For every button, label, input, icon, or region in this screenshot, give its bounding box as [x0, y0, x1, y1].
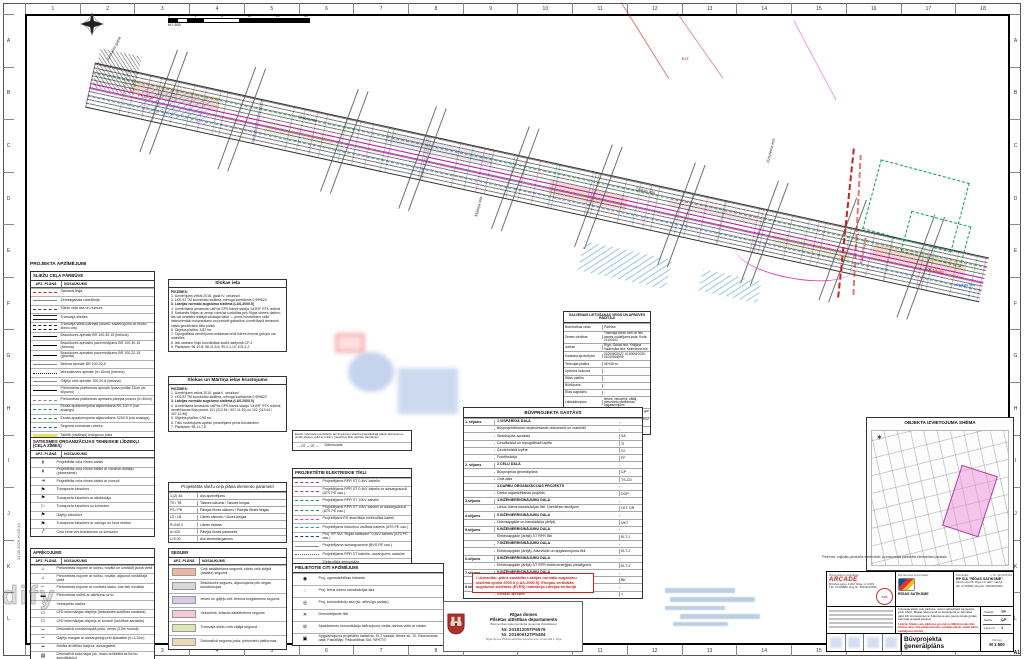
- equipment-symbol-icon: ┉: [31, 636, 55, 641]
- param-symbol: 1-(2) 3A: [169, 493, 198, 498]
- section-name: 1.VISPĀRĪGĀ DAĻA: [495, 420, 619, 425]
- legend-row: Zemesgabala robežlīnija: [31, 296, 154, 305]
- usage-key: Kadastra apzīmējumi: [564, 354, 603, 358]
- section-name: Fotofiksācija: [495, 456, 619, 461]
- legend-label: Metāla drošības barjera; aizsargsieta: [55, 645, 154, 650]
- other-symbol-icon: ✕: [293, 613, 317, 618]
- legend-label: Iebrauktuves apmale (h=10cm) (betona): [59, 371, 154, 376]
- section-code: GI: [619, 448, 642, 453]
- sheet-format-label: A1: [1014, 650, 1020, 656]
- section-name: 6.INŽENIERRISINĀJUMU DAĻA: [495, 528, 619, 533]
- esignature-smudge: [673, 622, 728, 626]
- dense-annotation-cluster: [92, 48, 141, 96]
- legend-label: Projektējams RPR ST 0,4kV kabelis: [321, 480, 411, 485]
- usage-table-title: GALVENAIS LIETOŠANAS VEIDS UN APBŪVES RĀ…: [564, 312, 650, 323]
- composition-row: 5.sējums 6.INŽENIERRISINĀJUMU DAĻA: [464, 526, 642, 533]
- section-name: 7.INŽENIERRISINĀJUMU DAĻA: [495, 542, 619, 547]
- usage-row: Zemes vienības Tramvaja sliežu ceļš un i…: [564, 331, 650, 343]
- volume-label: [464, 551, 495, 552]
- legend-label: Gājēju margas ar aizsargrežģi pret šļaka…: [55, 636, 154, 641]
- pavement-row: Veloceliņš: krāsota asfaltbetona segums: [169, 607, 286, 621]
- param-description: Ass elementa garums: [198, 536, 286, 541]
- legend-row: Pieturvietas platformas apmale īpaša pro…: [31, 385, 154, 395]
- legend-col-symbol: APZ. PLĀNĀ: [31, 451, 62, 457]
- volume-label: 3.sējums: [464, 499, 495, 504]
- legend-label: Brauktuves apmale BR 100.30.15 (betona): [59, 334, 154, 339]
- legend-row: ⤤ Ceļa zīme virs brauktuves uz konsoles: [31, 528, 154, 537]
- network-code-label: ELT: [682, 56, 689, 61]
- legend-symbol: [33, 300, 57, 301]
- legend-row: Iebrauktuves apmale (h=10cm) (betona): [31, 368, 154, 377]
- usage-value: 38 948 m²: [603, 362, 650, 366]
- legend-label: Proj. lietus ūdens kanalizācijas aka: [317, 589, 443, 594]
- usage-row: Būvniecības veids Pārbūve: [564, 323, 650, 330]
- drawing-sheet: 123456789101112131415161718 123456789101…: [0, 0, 1024, 659]
- volume-label: [464, 458, 495, 459]
- legend-symbol: [33, 390, 57, 391]
- legend-row: ⚑ Transporta luksofors: [31, 485, 154, 494]
- section-code: [619, 587, 642, 588]
- frame-column-label: 13: [682, 645, 737, 656]
- volume-label: [464, 479, 495, 480]
- volume-label: 1. sējums: [464, 420, 495, 425]
- pavement-swatch: [172, 638, 196, 646]
- esignature-smudge: [665, 606, 725, 610]
- pavement-swatch: [172, 610, 196, 618]
- param-row: R=240.0 Līknes rādiuss: [169, 520, 286, 527]
- frame-row-label: H: [3, 382, 14, 435]
- legend-row: ↟ Projektētās ceļa zīmes balsts: [31, 458, 154, 467]
- legend-label: Projektējams RPR ST 10kV kabelis: [321, 498, 411, 503]
- composition-row: Skaidrojošs apraksts SA: [464, 432, 642, 439]
- sign-symbol-icon: ⤤: [31, 530, 55, 535]
- composition-rows: 1. sējums 1.VISPĀRĪGĀ DAĻA Būvprojektēša…: [464, 418, 642, 598]
- legend-label: Dekoratīvā koka laipa (sk. mazo arhitekt…: [55, 652, 154, 659]
- legend-header: SEGUMI: [169, 549, 286, 558]
- usage-value: -: [603, 391, 650, 395]
- frame-row-label: E: [1010, 224, 1021, 277]
- legend-row: Tramvaja sliežu pārejas posms: savienoju…: [31, 322, 154, 332]
- legend-row: ▤ Dekoratīvā koka laipa (sk. mazo arhite…: [31, 651, 154, 659]
- legend-traffic-signs: SATIKSMES ORGANIZĀCIJAS TEHNISKIE LĪDZEK…: [30, 437, 155, 537]
- sheet-info-row: Marka ĢP: [983, 616, 1011, 624]
- responsible-persons-cell: [827, 607, 896, 633]
- signature-cell: [846, 634, 865, 651]
- usage-key: Labiekārtojums: [564, 400, 603, 404]
- legend-label: Pieturvietas platformas apmale īpaša pro…: [59, 386, 154, 395]
- frame-row-label: A: [1010, 14, 1021, 67]
- legend-row: Brauktuves apmale BR 100.30.15 (betona): [31, 332, 154, 341]
- location-scheme-box: OBJEKTA IZVIETOJUMA SHĒMA ✶: [866, 417, 1014, 571]
- scalebar-tick-label: 20: [276, 14, 280, 18]
- volume-label: [464, 565, 495, 566]
- section-code: [619, 429, 642, 430]
- frame-row-label: I: [3, 435, 14, 488]
- frame-row-label: F: [1010, 277, 1021, 330]
- section-name: Darbu organizēšanas projekts: [495, 492, 619, 497]
- signature-cell: [883, 634, 902, 651]
- equipment-symbol-icon: ▭: [31, 611, 55, 616]
- sign-symbol-icon: ⚐: [31, 505, 55, 510]
- legend-row: ⚑ Transporta luksofors ar vairogu un fon…: [31, 519, 154, 528]
- legend-row: ⇥ Projektētās ceļa zīmes balsts ar konso…: [31, 477, 154, 486]
- param-description: Pārejas līknes sākums / Pārejas līknes b…: [198, 508, 286, 513]
- legend-col-name: NOSAUKUMS: [62, 451, 154, 457]
- frame-column-label: 6: [299, 645, 354, 656]
- usage-row: Teritorijas platība 38 948 m²: [564, 360, 650, 367]
- legend-label: LED informācijas displejs (tiešsaistes k…: [55, 611, 154, 616]
- legend-label: Seguma nomaiņas robeža: [59, 425, 154, 430]
- project-title-text: Tramvaja sliežu ceļu pārbūve, veicot sab…: [898, 608, 978, 622]
- notes-items: 1. Uzmērījums veikts 2018. gada II. cetu…: [171, 391, 284, 429]
- section-name: 4.INŽENIERRISINĀJUMU DAĻA: [495, 499, 619, 504]
- frame-column-label: 11: [572, 3, 627, 14]
- sign-symbol-icon: ↟: [31, 461, 55, 466]
- legend-header: PROJEKTĒTIE ELEKTRISKIE TĪKLI: [293, 469, 411, 478]
- graphic-scalebar: 015102040 M 1:500: [168, 14, 308, 26]
- legend-track-reconstruction: SLIEŽU CEĻA PĀRBŪVE APZ. PLĀNĀ NOSAUKUMS…: [30, 271, 155, 454]
- legend-label: Pieturvietas nojume ar soliņu, novākt; a…: [55, 574, 154, 583]
- section-code: ĢP: [619, 470, 642, 475]
- legend-row: ⚑ Gājēju luksofors: [31, 511, 154, 520]
- sign-symbol-icon: ⚑: [31, 496, 55, 501]
- legend-row: Pieturvietas platformas apmales pārejas …: [31, 395, 154, 404]
- legend-symbol: [33, 336, 57, 337]
- section-code: BK: [619, 578, 642, 583]
- frame-column-label: 7: [353, 3, 408, 14]
- pavement-swatch: [172, 624, 196, 632]
- track-plan-parameters: Projektētās sliežu ceļa plāna elementu p…: [168, 482, 287, 543]
- legend-label: Velosipēdu statīvs: [55, 602, 154, 607]
- north-arrow-icon: [80, 12, 104, 36]
- other-symbol-row: ⊘ Apakšzemes komunikāciju šķērsojumu vie…: [293, 621, 443, 633]
- legend-label: Tramvaja sliedes: [59, 315, 154, 320]
- designer-cell: Būvprojekta izstrādātājs: ARCADE Brīvība…: [827, 572, 896, 606]
- legend-row: ━ Metāla drošības barjera; aizsargsieta: [31, 643, 154, 652]
- composition-row: Elektroapgāde (ārējā) ST RPR tīkli ELT-1: [464, 533, 642, 540]
- section-name: 8.INŽENIERRISINĀJUMU DAĻA: [495, 556, 619, 561]
- legend-rows: ⌂ Pieturvietas nojume ar soliņu, novākt …: [31, 565, 154, 659]
- frame-column-label: 1: [25, 3, 80, 14]
- electric-row: Proj. RP SIA "Rīgas satiksme" 0,4kV kabe…: [293, 532, 411, 542]
- location-map: ✶: [871, 430, 1009, 566]
- scalebar-tick-label: 5: [221, 14, 223, 18]
- frame-column-label: 6: [299, 3, 354, 14]
- frame-row-label: F: [3, 277, 14, 330]
- legend-header: SATIKSMES ORGANIZĀCIJAS TEHNISKIE LĪDZEK…: [31, 438, 154, 451]
- esignature-smudge: [670, 597, 755, 602]
- riga-coat-of-arms-icon: [447, 613, 465, 640]
- initiator-label: Būvniecības ierosinātājs:: [898, 573, 951, 577]
- section-code: TI: [619, 441, 642, 446]
- volume-label: [464, 443, 495, 444]
- legend-row: Seguma nomaiņas robeža: [31, 422, 154, 431]
- plot-date-stamp: 24.09.2020 10:15:14: [16, 523, 21, 560]
- frame-row-label: G: [3, 329, 14, 382]
- pavement-row: Dekoratīvā seguma josla; pieturvietu pla…: [169, 635, 286, 649]
- legend-rows: Ceļš asfaltbetona segumā; sliežu ceļš sl…: [169, 565, 286, 649]
- document-title: Būvprojekta ģenerālplāns: [902, 634, 981, 651]
- frame-row-label: G: [1010, 329, 1021, 382]
- approval-footer: Rīgas domes Pilsētas attīstības departam…: [468, 638, 579, 641]
- rigas-satiksme-logo: [898, 578, 915, 591]
- legend-label: Betona apmale BR 100.20.8: [59, 362, 154, 367]
- street-label: Slokas iela: [956, 282, 975, 287]
- frame-column-label: 8: [408, 3, 463, 14]
- section-code: T: [619, 592, 642, 597]
- frame-row-label: B: [1010, 67, 1021, 120]
- cable-symbol: [295, 510, 319, 511]
- signature-cell: [864, 634, 883, 651]
- legend-label: Zemesgabala robežlīnija: [59, 298, 154, 303]
- legend-label: Transporta luksofors: [55, 488, 154, 493]
- contract-number: L.Nr. 42/1205164: [991, 573, 1012, 577]
- legend-label: Proj. ugunsdzēsības hidrants: [317, 577, 443, 582]
- legend-label: Esoša apzaļumojuma atjaunošana S200.5 (v…: [59, 416, 154, 421]
- section-name: 3.DARBU ORGANIZĀCIJAS PROJEKTS: [495, 484, 619, 489]
- note-item: 9. Planšetes: 98-10-8; 98-11-5,6; 99-2-1…: [171, 345, 284, 349]
- frame-row-label: C: [3, 119, 14, 172]
- legend-symbol: [33, 315, 57, 320]
- composition-row: Ceļa daļa TS-CD: [464, 476, 642, 483]
- cable-symbol: [295, 554, 319, 555]
- section-code: LKT, DR: [619, 506, 642, 511]
- frame-column-label: 5: [244, 3, 299, 14]
- frame-column-label: 7: [353, 645, 408, 656]
- legend-label: Dekoratīvā seguma josla; pieturvietu pla…: [199, 640, 286, 645]
- legend-row: ⚐ Transporta luksofors uz konsoles: [31, 502, 154, 511]
- section-code: [619, 529, 642, 530]
- scalebar-bar: [168, 18, 310, 23]
- usage-row: Stāvu platība -: [564, 375, 650, 382]
- param-row: LS / LB Līknes sākums / Līknes beigas: [169, 513, 286, 520]
- frame-column-label: 9: [463, 3, 518, 14]
- section-name: Elektroapgāde (ārējā). Atsevišķie un apg…: [495, 549, 619, 554]
- section-code: [619, 465, 642, 466]
- signature-smudge: [885, 637, 897, 647]
- legend-label: Esoša apzaļumojuma atjaunošana RS-100 V …: [59, 405, 154, 414]
- legend-symbol: [33, 309, 57, 310]
- frame-row-label: C: [1010, 119, 1021, 172]
- city-approval-stamp: Rīgas domes Pilsētas attīstības departam…: [443, 601, 583, 652]
- signature-name-lines: [829, 608, 893, 628]
- electric-row: Projektējama aizsargcaurule (BVS PE cau.…: [293, 541, 411, 550]
- legend-label: Projektētās ceļa zīmes balsts ar virzien…: [55, 468, 154, 477]
- titleblock-note: Piezīmes: oriģināls parakstīts elektroni…: [822, 556, 1006, 560]
- notes-martina-krustojums: Slokas un Mārtiņa ielas krustojums PIEZĪ…: [168, 376, 287, 432]
- usage-key: Stāvu platība: [564, 376, 603, 380]
- cable-symbol: [295, 519, 319, 520]
- legend-subheader: APZ. PLĀNĀ NOSAUKUMS: [31, 451, 154, 458]
- section-name: Būvprojektēšanai nepieciešamie dokumenti…: [495, 427, 619, 432]
- param-description: Līknes sākums / Līknes beigas: [198, 515, 286, 520]
- project-area-highlight: [942, 464, 998, 537]
- param-row: PS / PB Pārejas līknes sākums / Pārejas …: [169, 506, 286, 513]
- scalebar-tick-label: 40: [304, 14, 308, 18]
- legend-label: Projektējams luksoforu vadības kabelis (…: [321, 525, 411, 530]
- electric-row: Projektējams RPR ST 10kV kabelis ar aizs…: [293, 505, 411, 515]
- cable-symbol: [295, 491, 319, 492]
- legend-header: APRĪKOJUMS: [31, 549, 154, 558]
- pavement-swatch: [172, 568, 196, 576]
- other-symbol-icon: ▣: [293, 637, 317, 642]
- equipment-symbol-icon: ━: [31, 645, 55, 650]
- cable-symbol: [295, 536, 319, 537]
- legend-main-title: PROJEKTA APZĪMĒJUMI: [30, 262, 86, 267]
- map-north-icon: ✶: [876, 433, 883, 442]
- sheet-info-value: ĢP: [1001, 618, 1011, 622]
- usage-key: Zemes vienības: [564, 335, 603, 339]
- section-code: TS-CD: [619, 477, 642, 482]
- frame-row-label: J: [3, 487, 14, 540]
- red-markup-smudge: [336, 334, 364, 352]
- section-code: [619, 515, 642, 516]
- legend-label: Pieturvietas platformas apmales pārejas …: [59, 398, 154, 403]
- frame-row-label: A: [3, 14, 14, 67]
- legend-symbol: [33, 355, 57, 356]
- other-symbol-row: ▣ Apgaismojuma projektēto sadali sk. ELT…: [293, 633, 443, 645]
- legend-label: Projektētās ceļa zīmes balsts: [55, 461, 154, 466]
- other-symbol-row: ◌ Proj. lietus ūdens kanalizācijas aka: [293, 585, 443, 597]
- frame-row-label: E: [3, 224, 14, 277]
- legend-label: Ceļa zīme virs brauktuves uz konsoles: [55, 530, 154, 535]
- other-symbol-row: ✕ Demontējamie tīkli: [293, 609, 443, 621]
- notes-label: PIEZĪMES:: [171, 290, 188, 294]
- legend-pavements: SEGUMI APZ. PLĀNĀ NOSAUKUMS Ceļš asfaltb…: [168, 548, 287, 650]
- params-rows: 1-(2) 3A Ass apzīmējums TS / TB Taisnes …: [169, 492, 286, 542]
- volume-label: [464, 493, 495, 494]
- param-row: L=0.00 Ass elementa garums: [169, 535, 286, 542]
- legend-symbol: [33, 345, 57, 346]
- equipment-symbol-icon: ▭: [31, 619, 55, 624]
- legend-symbol: [33, 325, 57, 330]
- section-name: Ūdensapgāde un kanalizācija (ārējā): [495, 520, 619, 525]
- signature-smudge: [848, 637, 860, 647]
- legend-row: ⚑ Transporta luksofors ar atkārtotāju: [31, 494, 154, 503]
- legend-header: SLIEŽU CEĻA PĀRBŪVE: [31, 272, 154, 281]
- notes-items: 1. Uzmērījums veikts 2018. gada IV. cetu…: [171, 294, 284, 349]
- watermark-text: dify: [2, 580, 56, 611]
- section-code: [619, 486, 642, 487]
- param-symbol: R=240.0: [169, 522, 198, 527]
- legend-label: Transporta luksofors ar atkārtotāju: [55, 496, 154, 501]
- frame-column-label: 14: [736, 3, 791, 14]
- legend-symbol: [33, 427, 57, 428]
- legend-subheader: APZ. PLĀNĀ NOSAUKUMS: [31, 558, 154, 565]
- usage-row: Ēkas augstums -: [564, 389, 650, 396]
- legend-label: Transporta luksofors ar vairogu un fona …: [55, 522, 154, 527]
- usage-row: Adrese Rīga, Slokas iela, Krišjāņa Valde…: [564, 343, 650, 352]
- pavement-swatch: [172, 582, 196, 590]
- other-symbol-row: ◎ Proj. komunikāciju aka (sk. attiecīgo …: [293, 597, 443, 609]
- frame-column-label: 3: [134, 3, 189, 14]
- electric-row: Projektējams luksoforu vadības kabelis (…: [293, 523, 411, 532]
- signature-smudge: [830, 637, 842, 647]
- param-row: A=120 Pārejas līknes parametrs: [169, 528, 286, 535]
- other-symbol-icon: ◉: [293, 577, 317, 582]
- electric-row: Projektējams RPR ST kabelis: nozarojums;…: [293, 550, 411, 559]
- sheet-info-value: 1: [1001, 626, 1011, 630]
- titleblock-top-row: Būvprojekta izstrādātājs: ARCADE Brīvība…: [827, 572, 1013, 607]
- legend-symbol: [33, 409, 57, 410]
- legend-label: Gājēju luksofors: [55, 513, 154, 518]
- legend-row: ↟ Projektētās ceļa zīmes balsts ar virzi…: [31, 467, 154, 477]
- section-code: FF: [619, 456, 642, 461]
- frame-column-label: 12: [627, 3, 682, 14]
- legend-label: Sliežu ceļa ass un numurs: [59, 307, 154, 312]
- usage-key: Būvtilpums: [564, 384, 603, 388]
- composition-row: 2. sējums 2.CEĻU DAĻA: [464, 461, 642, 468]
- section-code: [619, 501, 642, 502]
- legend-row: Brauktuves apmales pazeminājums BR 100.3…: [31, 340, 154, 350]
- note-item: 4. Uzmērīšanā izmantota LatPos GPS bāzes…: [171, 404, 284, 417]
- composition-row: 1. sējums 1.VISPĀRĪGĀ DAĻA: [464, 418, 642, 425]
- scale-value: M 1:500: [989, 642, 1004, 647]
- volume-label: [464, 508, 495, 509]
- section-name: 2.CEĻU DAĻA: [495, 463, 619, 468]
- stage-description-red: 1.kārta: Sliežu ceļu pārbūve posmā no Mā…: [898, 623, 978, 633]
- legend-row: Sarkanā līnija: [31, 288, 154, 297]
- usage-value: -: [603, 384, 650, 388]
- location-scheme-title: OBJEKTA IZVIETOJUMA SHĒMA: [867, 418, 1013, 427]
- section-code: ELT-1: [619, 535, 642, 540]
- cable-symbol: [295, 527, 319, 528]
- params-title: Projektētās sliežu ceļa plāna elementu p…: [169, 483, 286, 492]
- legend-label: Ietves un gājēju ceļi: betona bruģakmens…: [199, 598, 286, 603]
- legend-rows: Projektējams RPR ST 0,4kV kabelis Projek…: [293, 478, 411, 567]
- legend-label: Proj. RP SIA "Rīgas satiksme" 0,4kV kabe…: [321, 533, 411, 542]
- scalebar-scale-label: M 1:500: [168, 23, 181, 27]
- legend-label: Brauktuves apmales pazeminājums BR 100.2…: [59, 351, 154, 360]
- legend-label: Projektējami RS atsevišķie elektrotīkla …: [321, 517, 411, 522]
- composition-row: Būvprojekta ģenerālplāns ĢP: [464, 468, 642, 475]
- equipment-symbol-icon: ⌂: [31, 567, 55, 572]
- sheet-info-row: Lapa Nr. 1: [983, 625, 1011, 632]
- legend-label: Projektējama aizsargcaurule (BVS PE cau.…: [321, 544, 411, 549]
- sheet-info-value: TP: [1001, 610, 1011, 614]
- legend-label: Apgaismojuma projektēto sadali sk. ELT s…: [317, 635, 443, 644]
- frame-row-labels-left: ABCDEFGHIJKL: [3, 14, 14, 645]
- sheet-info-key: Stadija: [983, 610, 1001, 614]
- initiator-name: RĪGAS SATIKSME: [898, 592, 951, 596]
- volume-label: 2. sējums: [464, 463, 495, 468]
- section-code: [619, 573, 642, 574]
- notes-body: PIEZĪMES: 1. Uzmērījums veikts 2018. gad…: [169, 287, 286, 351]
- legend-symbol: [33, 400, 57, 401]
- usage-key: Būvniecības veids: [564, 325, 603, 329]
- signature-smudge: [867, 637, 879, 647]
- section-name: Būvprojekta ģenerālplāns: [495, 470, 619, 475]
- param-symbol: L=0.00: [169, 536, 198, 541]
- frame-column-label: 10: [517, 3, 572, 14]
- param-row: TS / TB Taisnes sākums / Taisnes beigas: [169, 499, 286, 506]
- legend-row: Esoša apzaļumojuma atjaunošana S200.5 (v…: [31, 414, 154, 423]
- legend-col-symbol: APZ. PLĀNĀ: [31, 558, 62, 564]
- legend-row: ┅ Dekoratīvā norobežojošā josla, zema (3…: [31, 626, 154, 635]
- composition-row: Elektroapgāde (ārējā) ST RPR elektroener…: [464, 562, 642, 569]
- section-name: Elektroapgāde (ārējā) ST RPR elektroener…: [495, 563, 619, 568]
- legend-col-name: NOSAUKUMS: [200, 558, 286, 564]
- blue-stamp-smudge: [398, 368, 458, 414]
- client-cell: Pasūtītājs: RP SIA "RĪGAS SATIKSME" Klei…: [954, 572, 1013, 606]
- composition-row: 3.sējums 4.INŽENIERRISINĀJUMU DAĻA: [464, 497, 642, 504]
- usage-row: Būvtilpums -: [564, 382, 650, 389]
- blue-stamp-smudge: [348, 352, 394, 392]
- param-symbol: A=120: [169, 529, 198, 534]
- section-code: [619, 558, 642, 559]
- legend-label: Apakšzemes komunikāciju šķērsojumu vietā…: [317, 625, 443, 630]
- volume-label: [464, 472, 495, 473]
